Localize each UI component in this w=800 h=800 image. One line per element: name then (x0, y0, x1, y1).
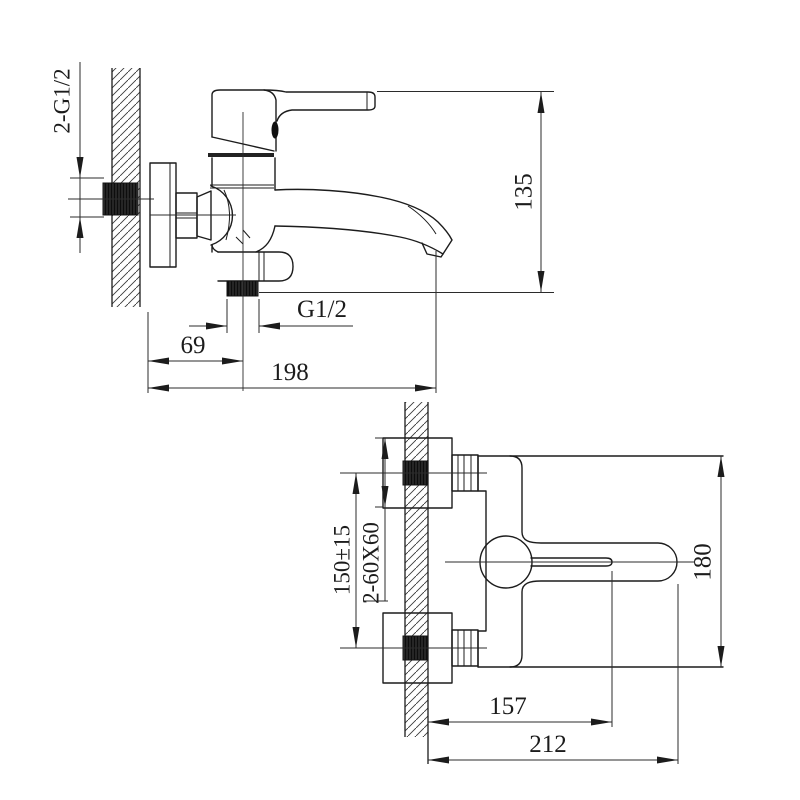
technical-drawing-page: 2-G1/2 135 G1/2 69 (0, 0, 800, 800)
label-inlet-center-distance: 150±15 (329, 525, 354, 595)
wall-hatch-plan (405, 402, 428, 737)
dim-overall-reach: 212 (428, 584, 678, 764)
faucet-dimension-drawing: 2-G1/2 135 G1/2 69 (0, 0, 800, 800)
dim-wall-inlet-thread: 2-G1/2 (49, 62, 104, 253)
label-shower-outlet-offset: 69 (181, 332, 206, 359)
dim-mounting-block-size: 2-60X60 (358, 438, 388, 604)
shower-outlet-thread (227, 281, 258, 296)
spout (275, 189, 452, 257)
cap-ring (208, 153, 274, 157)
label-overall-height: 135 (511, 173, 538, 211)
handle (208, 90, 375, 157)
handle-hub (272, 122, 279, 139)
handle-lever (264, 90, 375, 121)
plan-view: 150±15 2-60X60 180 157 (329, 402, 724, 764)
wall-section-plan (405, 402, 428, 764)
label-spout-reach: 198 (271, 359, 309, 386)
label-overall-reach: 212 (529, 731, 567, 758)
dim-inlet-center-distance: 150±15 (329, 473, 359, 648)
dim-shower-outlet-thread: G1/2 (189, 296, 353, 333)
dim-handle-pivot-reach: 157 (428, 571, 612, 727)
label-mounting-block-size: 2-60X60 (358, 522, 383, 604)
dim-shower-outlet-offset: 69 (148, 312, 243, 393)
faucet-body-plan (445, 456, 723, 667)
label-wall-inlet-thread: 2-G1/2 (49, 68, 74, 133)
shower-outlet (218, 252, 293, 296)
valve-body (210, 158, 275, 252)
connection-nut (150, 186, 250, 245)
dim-overall-height: 135 (259, 92, 554, 293)
body-and-lever-outline (510, 456, 677, 667)
side-view: 2-G1/2 135 G1/2 69 (49, 62, 554, 393)
label-handle-pivot-reach: 157 (489, 693, 527, 720)
dim-body-depth: 180 (690, 456, 725, 667)
label-shower-outlet-thread: G1/2 (297, 296, 347, 323)
label-body-depth: 180 (690, 543, 717, 581)
